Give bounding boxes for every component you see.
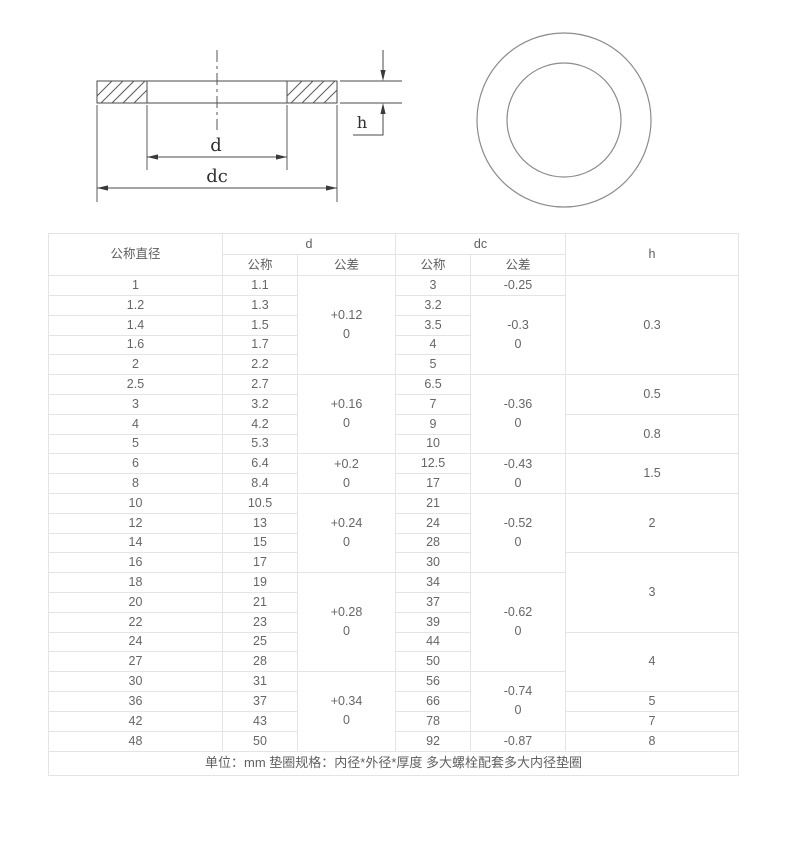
washer-technical-drawing: d dc h [0, 0, 790, 230]
cell-d-tolerance-line: +0.24 [298, 514, 395, 533]
cell-d-nominal: 17 [223, 553, 298, 573]
cell-nominal-diameter: 2 [49, 355, 223, 375]
cell-dc-nominal: 39 [396, 612, 471, 632]
cell-dc-nominal: 9 [396, 414, 471, 434]
cell-d-tolerance-line: +0.12 [298, 306, 395, 325]
cell-d-nominal: 25 [223, 632, 298, 652]
cell-dc-tolerance-line: 0 [471, 414, 565, 433]
cell-dc-nominal: 78 [396, 711, 471, 731]
cell-dc-nominal: 37 [396, 592, 471, 612]
cell-h: 7 [566, 711, 739, 731]
subheader-d-nominal: 公称 [223, 255, 298, 276]
cell-nominal-diameter: 48 [49, 731, 223, 751]
cell-nominal-diameter: 20 [49, 592, 223, 612]
hatch-right [287, 81, 337, 103]
cell-d-nominal: 19 [223, 573, 298, 593]
outer-circle [477, 33, 651, 207]
cell-nominal-diameter: 1.4 [49, 315, 223, 335]
cell-h: 0.3 [566, 276, 739, 375]
cell-nominal-diameter: 24 [49, 632, 223, 652]
cell-d-tolerance: +0.240 [298, 493, 396, 572]
cell-h: 4 [566, 632, 739, 691]
cell-d-nominal: 15 [223, 533, 298, 553]
cell-d-tolerance-line: 0 [298, 474, 395, 493]
cell-d-tolerance-line: 0 [298, 325, 395, 344]
cell-nominal-diameter: 27 [49, 652, 223, 672]
cell-dc-tolerance-line: -0.62 [471, 603, 565, 622]
cell-d-nominal: 4.2 [223, 414, 298, 434]
cell-d-nominal: 1.1 [223, 276, 298, 296]
cell-d-tolerance-line: +0.2 [298, 455, 395, 474]
table-footer: 单位：mm 垫圈规格：内径*外径*厚度 多大螺栓配套多大内径垫圈 [49, 751, 739, 775]
cell-d-nominal: 21 [223, 592, 298, 612]
dimension-h: h [340, 50, 402, 135]
cell-nominal-diameter: 16 [49, 553, 223, 573]
cell-dc-nominal: 66 [396, 691, 471, 711]
header-dc: dc [396, 234, 566, 255]
dim-label-h: h [357, 113, 367, 132]
cell-d-nominal: 10.5 [223, 493, 298, 513]
cell-dc-tolerance-line: 0 [471, 533, 565, 552]
unit-note: 单位：mm 垫圈规格：内径*外径*厚度 多大螺栓配套多大内径垫圈 [49, 751, 739, 775]
cell-dc-nominal: 12.5 [396, 454, 471, 474]
cell-h: 8 [566, 731, 739, 751]
cell-dc-tolerance-line: 0 [471, 622, 565, 641]
cell-nominal-diameter: 1.2 [49, 296, 223, 316]
cell-d-nominal: 5.3 [223, 434, 298, 454]
cell-dc-nominal: 50 [396, 652, 471, 672]
subheader-dc-nominal: 公称 [396, 255, 471, 276]
header-d: d [223, 234, 396, 255]
cell-dc-tolerance-line: -0.87 [471, 732, 565, 751]
cell-dc-tolerance: -0.360 [471, 375, 566, 454]
cell-dc-tolerance-line: -0.74 [471, 682, 565, 701]
cell-nominal-diameter: 3 [49, 394, 223, 414]
cell-d-nominal: 13 [223, 513, 298, 533]
cell-dc-tolerance-line: 0 [471, 474, 565, 493]
cell-dc-nominal: 10 [396, 434, 471, 454]
cell-dc-nominal: 34 [396, 573, 471, 593]
cell-h: 3 [566, 553, 739, 632]
cell-nominal-diameter: 4 [49, 414, 223, 434]
washer-dimension-table: 公称直径 d dc h 公称 公差 公称 公差 11.1+0.1203-0.25… [48, 233, 739, 776]
cell-dc-tolerance: -0.430 [471, 454, 566, 494]
cell-nominal-diameter: 14 [49, 533, 223, 553]
cell-dc-tolerance-line: -0.25 [471, 276, 565, 295]
cell-d-nominal: 23 [223, 612, 298, 632]
cell-dc-nominal: 28 [396, 533, 471, 553]
cell-d-tolerance-line: +0.16 [298, 395, 395, 414]
dim-label-dc: dc [206, 166, 228, 187]
cell-d-nominal: 1.5 [223, 315, 298, 335]
cell-d-nominal: 2.2 [223, 355, 298, 375]
cell-d-tolerance-line: +0.34 [298, 692, 395, 711]
cell-dc-tolerance: -0.520 [471, 493, 566, 572]
cell-d-tolerance-line: +0.28 [298, 603, 395, 622]
washer-front-view [477, 33, 651, 207]
dim-label-d: d [210, 135, 222, 156]
cell-d-nominal: 1.7 [223, 335, 298, 355]
cell-h: 0.8 [566, 414, 739, 454]
header-h: h [566, 234, 739, 276]
cell-nominal-diameter: 10 [49, 493, 223, 513]
cell-dc-tolerance-line: 0 [471, 335, 565, 354]
cell-dc-nominal: 4 [396, 335, 471, 355]
cell-nominal-diameter: 12 [49, 513, 223, 533]
cell-h: 5 [566, 691, 739, 711]
cell-dc-tolerance-line: 0 [471, 701, 565, 720]
cell-h: 1.5 [566, 454, 739, 494]
table-row: 1010.5+0.24021-0.5202 [49, 493, 739, 513]
cell-h: 2 [566, 493, 739, 552]
table-body: 11.1+0.1203-0.250.31.21.33.2-0.301.41.53… [49, 276, 739, 752]
cell-nominal-diameter: 8 [49, 474, 223, 494]
cell-nominal-diameter: 42 [49, 711, 223, 731]
cell-nominal-diameter: 1 [49, 276, 223, 296]
table-header: 公称直径 d dc h 公称 公差 公称 公差 [49, 234, 739, 276]
cell-d-nominal: 31 [223, 672, 298, 692]
cell-d-tolerance-line: 0 [298, 533, 395, 552]
cell-dc-nominal: 7 [396, 394, 471, 414]
cell-d-nominal: 37 [223, 691, 298, 711]
subheader-dc-tolerance: 公差 [471, 255, 566, 276]
cell-d-nominal: 1.3 [223, 296, 298, 316]
cell-d-nominal: 8.4 [223, 474, 298, 494]
cell-dc-nominal: 21 [396, 493, 471, 513]
cell-d-tolerance: +0.20 [298, 454, 396, 494]
cell-nominal-diameter: 30 [49, 672, 223, 692]
washer-section-view: d dc h [97, 50, 402, 202]
cell-nominal-diameter: 22 [49, 612, 223, 632]
cell-dc-tolerance: -0.87 [471, 731, 566, 751]
hatch-left [97, 81, 147, 103]
cell-dc-nominal: 56 [396, 672, 471, 692]
cell-dc-tolerance-line: -0.36 [471, 395, 565, 414]
cell-d-nominal: 43 [223, 711, 298, 731]
table-row: 2.52.7+0.1606.5-0.3600.5 [49, 375, 739, 395]
cell-dc-nominal: 3.2 [396, 296, 471, 316]
cell-dc-nominal: 3.5 [396, 315, 471, 335]
cell-dc-nominal: 5 [396, 355, 471, 375]
cell-d-tolerance: +0.340 [298, 672, 396, 751]
cell-d-nominal: 6.4 [223, 454, 298, 474]
cell-d-tolerance-line: 0 [298, 711, 395, 730]
cell-dc-tolerance-line: -0.3 [471, 316, 565, 335]
cell-dc-tolerance: -0.25 [471, 276, 566, 296]
cell-d-tolerance: +0.160 [298, 375, 396, 454]
cell-nominal-diameter: 18 [49, 573, 223, 593]
cell-dc-tolerance-line: -0.43 [471, 455, 565, 474]
inner-circle [507, 63, 621, 177]
cell-dc-nominal: 3 [396, 276, 471, 296]
cell-nominal-diameter: 6 [49, 454, 223, 474]
cell-d-nominal: 50 [223, 731, 298, 751]
cell-dc-nominal: 6.5 [396, 375, 471, 395]
table-row: 66.4+0.2012.5-0.4301.5 [49, 454, 739, 474]
cell-dc-nominal: 24 [396, 513, 471, 533]
table-row: 11.1+0.1203-0.250.3 [49, 276, 739, 296]
header-nominal-diameter: 公称直径 [49, 234, 223, 276]
cell-dc-tolerance-line: -0.52 [471, 514, 565, 533]
cell-d-tolerance-line: 0 [298, 622, 395, 641]
cell-d-tolerance: +0.280 [298, 573, 396, 672]
cell-nominal-diameter: 5 [49, 434, 223, 454]
cell-dc-nominal: 30 [396, 553, 471, 573]
cell-dc-tolerance: -0.740 [471, 672, 566, 731]
cell-dc-tolerance: -0.620 [471, 573, 566, 672]
cell-dc-tolerance: -0.30 [471, 296, 566, 375]
cell-d-nominal: 28 [223, 652, 298, 672]
cell-d-nominal: 2.7 [223, 375, 298, 395]
cell-nominal-diameter: 36 [49, 691, 223, 711]
cell-dc-nominal: 44 [396, 632, 471, 652]
cell-d-tolerance-line: 0 [298, 414, 395, 433]
cell-dc-nominal: 92 [396, 731, 471, 751]
cell-d-tolerance: +0.120 [298, 276, 396, 375]
cell-d-nominal: 3.2 [223, 394, 298, 414]
cell-dc-nominal: 17 [396, 474, 471, 494]
cell-nominal-diameter: 2.5 [49, 375, 223, 395]
cell-nominal-diameter: 1.6 [49, 335, 223, 355]
subheader-d-tolerance: 公差 [298, 255, 396, 276]
cell-h: 0.5 [566, 375, 739, 415]
